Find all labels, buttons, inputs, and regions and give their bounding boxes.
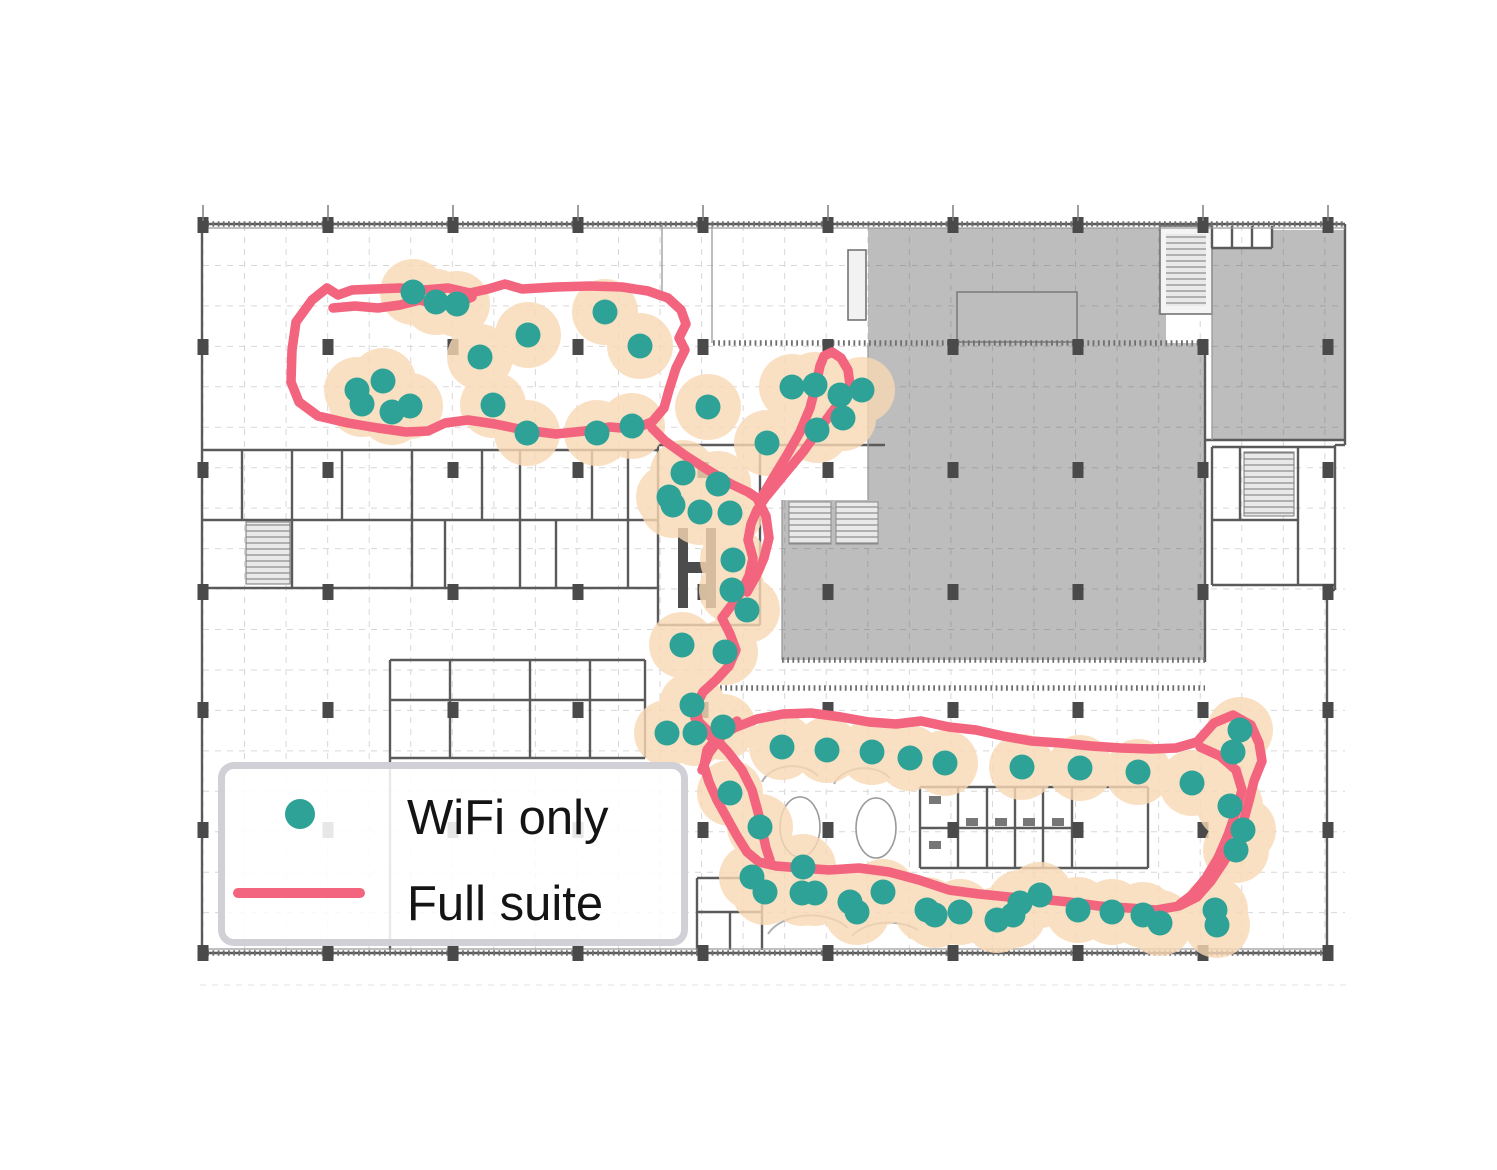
wifi-dot <box>803 373 828 398</box>
wifi-dot <box>718 781 743 806</box>
wifi-dot <box>371 369 396 394</box>
column-marker <box>823 822 834 838</box>
column-marker <box>698 822 709 838</box>
column-marker <box>448 462 459 478</box>
column-marker <box>1323 702 1334 718</box>
wifi-dot <box>805 418 830 443</box>
wifi-dot <box>831 406 856 431</box>
desk-mark <box>995 818 1007 826</box>
column-marker <box>948 945 959 961</box>
wifi-dot <box>735 598 760 623</box>
wifi-dot <box>845 900 870 925</box>
desk-mark <box>1052 818 1064 826</box>
wifi-dot <box>655 721 680 746</box>
desk-mark <box>929 796 941 804</box>
column-marker <box>198 822 209 838</box>
column-marker <box>823 945 834 961</box>
column-marker <box>1198 702 1209 718</box>
wifi-dot <box>628 334 653 359</box>
wifi-dot <box>933 751 958 776</box>
column-marker <box>573 462 584 478</box>
wifi-dot <box>593 300 618 325</box>
wifi-dot <box>671 461 696 486</box>
column-marker <box>323 945 334 961</box>
column-marker <box>573 339 584 355</box>
wifi-dot <box>445 292 470 317</box>
wifi-dot <box>815 738 840 763</box>
floor-plan-canvas <box>0 0 1497 1170</box>
column-marker <box>698 339 709 355</box>
wifi-dot <box>1221 740 1246 765</box>
column-marker <box>198 339 209 355</box>
wifi-dot <box>753 880 778 905</box>
desk-mark <box>1023 818 1035 826</box>
wifi-dot <box>516 323 541 348</box>
wifi-dot <box>661 493 686 518</box>
legend: WiFi only Full suite <box>218 762 688 946</box>
wifi-only-swatch-icon <box>285 799 315 829</box>
desk-mark <box>966 818 978 826</box>
wifi-dot <box>721 548 746 573</box>
wifi-dot <box>1228 718 1253 743</box>
wifi-dot <box>468 345 493 370</box>
column-marker <box>1323 339 1334 355</box>
wifi-dot <box>718 501 743 526</box>
wifi-dot <box>1068 756 1093 781</box>
wifi-dot <box>898 746 923 771</box>
column-marker <box>198 945 209 961</box>
column-marker <box>1073 945 1084 961</box>
wifi-dot <box>711 715 736 740</box>
column-marker <box>1323 822 1334 838</box>
column-marker <box>1073 339 1084 355</box>
wifi-dot <box>706 472 731 497</box>
column-marker <box>1073 702 1084 718</box>
column-marker <box>948 822 959 838</box>
wifi-dot <box>350 392 375 417</box>
wifi-dot <box>755 431 780 456</box>
column-marker <box>573 702 584 718</box>
wifi-dot <box>803 881 828 906</box>
wifi-dot <box>770 735 795 760</box>
wifi-dot <box>1224 838 1249 863</box>
desk-mark <box>929 841 941 849</box>
column-marker <box>448 945 459 961</box>
column-marker <box>448 702 459 718</box>
column-marker <box>1073 462 1084 478</box>
wifi-dot <box>1100 900 1125 925</box>
wifi-dot <box>1010 755 1035 780</box>
column-marker <box>1323 945 1334 961</box>
column-marker <box>1073 584 1084 600</box>
column-marker <box>1198 462 1209 478</box>
wifi-dot <box>1180 771 1205 796</box>
column-marker <box>823 462 834 478</box>
wifi-dot <box>1028 883 1053 908</box>
wifi-dot <box>948 900 973 925</box>
wifi-dot <box>1218 794 1243 819</box>
column-marker <box>323 702 334 718</box>
column-marker <box>1198 339 1209 355</box>
wifi-dot <box>748 815 773 840</box>
wifi-dot <box>1205 913 1230 938</box>
wifi-dot <box>585 421 610 446</box>
column-marker <box>823 584 834 600</box>
wifi-dot <box>720 578 745 603</box>
wifi-dot <box>1126 760 1151 785</box>
wifi-dot <box>398 394 423 419</box>
column-marker <box>323 462 334 478</box>
column-marker <box>323 584 334 600</box>
column-marker <box>573 584 584 600</box>
wifi-dot <box>923 903 948 928</box>
column-marker <box>323 339 334 355</box>
column-marker <box>1323 584 1334 600</box>
column-marker <box>448 584 459 600</box>
wifi-dot <box>680 693 705 718</box>
wifi-dot <box>713 640 738 665</box>
wifi-dot <box>828 383 853 408</box>
legend-label-full-suite: Full suite <box>407 877 603 931</box>
wifi-dot <box>791 855 816 880</box>
column-marker <box>198 702 209 718</box>
wifi-dot <box>515 421 540 446</box>
wifi-dot <box>620 414 645 439</box>
column-marker <box>948 462 959 478</box>
column-marker <box>198 462 209 478</box>
wifi-dot <box>696 395 721 420</box>
wifi-dot <box>401 280 426 305</box>
wifi-dot <box>860 740 885 765</box>
column-marker <box>1198 584 1209 600</box>
column-marker <box>573 945 584 961</box>
wifi-dot <box>688 500 713 525</box>
wifi-dot <box>670 633 695 658</box>
column-marker <box>198 584 209 600</box>
wifi-dot <box>1066 898 1091 923</box>
wifi-dot <box>780 375 805 400</box>
column-marker <box>948 339 959 355</box>
column-marker <box>698 945 709 961</box>
wifi-dot <box>1148 911 1173 936</box>
column-marker <box>1323 462 1334 478</box>
column-marker <box>1073 822 1084 838</box>
column-marker <box>948 584 959 600</box>
legend-label-wifi-only: WiFi only <box>407 791 608 845</box>
floor-plan-figure: WiFi only Full suite <box>0 0 1497 1170</box>
wifi-dot <box>481 393 506 418</box>
column-marker <box>948 702 959 718</box>
wifi-dot <box>850 378 875 403</box>
wifi-dot <box>871 880 896 905</box>
full-suite-swatch-icon <box>233 888 365 898</box>
wifi-dot <box>683 721 708 746</box>
